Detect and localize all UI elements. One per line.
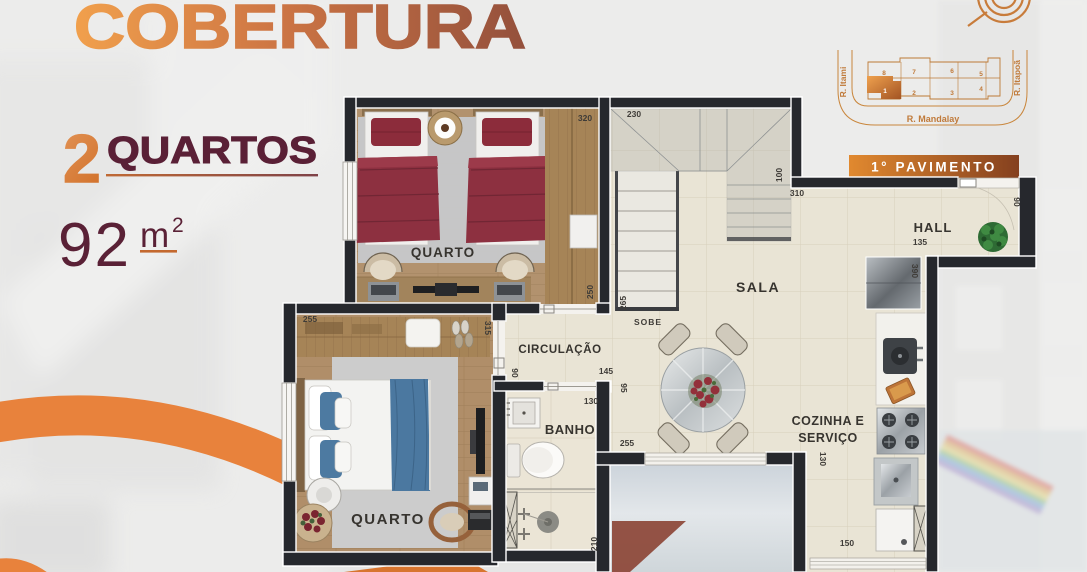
svg-text:1: 1	[883, 88, 887, 95]
svg-text:92: 92	[58, 211, 131, 280]
svg-text:90: 90	[510, 368, 520, 378]
svg-text:CIRCULAÇÃO: CIRCULAÇÃO	[518, 343, 601, 356]
svg-text:8: 8	[882, 70, 886, 77]
svg-text:2: 2	[63, 121, 101, 197]
svg-text:100: 100	[774, 168, 784, 182]
svg-text:SOBE: SOBE	[634, 317, 662, 327]
svg-text:6: 6	[950, 68, 954, 75]
svg-text:150: 150	[840, 538, 854, 548]
svg-text:SALA: SALA	[736, 279, 780, 295]
svg-text:QUARTO: QUARTO	[351, 511, 425, 528]
svg-text:COZINHA E: COZINHA E	[792, 414, 865, 428]
svg-text:3: 3	[950, 90, 954, 97]
svg-text:255: 255	[620, 438, 634, 448]
svg-text:2: 2	[912, 90, 916, 97]
svg-text:130: 130	[818, 452, 828, 466]
svg-text:250: 250	[585, 285, 595, 299]
svg-text:310: 310	[790, 188, 804, 198]
svg-text:QUARTOS: QUARTOS	[107, 130, 317, 172]
svg-text:90: 90	[1012, 197, 1022, 207]
svg-text:135: 135	[913, 237, 927, 247]
svg-text:210: 210	[589, 537, 599, 551]
svg-text:255: 255	[303, 314, 317, 324]
svg-text:HALL: HALL	[914, 220, 953, 235]
svg-text:2: 2	[172, 214, 184, 237]
svg-text:5: 5	[979, 71, 983, 78]
svg-text:SERVIÇO: SERVIÇO	[798, 431, 858, 445]
svg-text:R. Itami: R. Itami	[838, 67, 848, 98]
svg-text:4: 4	[979, 86, 983, 93]
svg-text:BANHO: BANHO	[545, 422, 595, 437]
svg-text:R. Mandalay: R. Mandalay	[907, 114, 960, 124]
svg-text:265: 265	[618, 296, 628, 310]
svg-text:320: 320	[578, 113, 592, 123]
svg-text:145: 145	[599, 366, 613, 376]
svg-text:m: m	[140, 216, 169, 255]
svg-text:1° PAVIMENTO: 1° PAVIMENTO	[871, 160, 997, 175]
svg-text:7: 7	[912, 69, 916, 76]
svg-text:230: 230	[627, 109, 641, 119]
svg-text:95: 95	[619, 383, 629, 393]
svg-text:130: 130	[584, 396, 598, 406]
svg-text:R. Itapoã: R. Itapoã	[1012, 60, 1022, 96]
svg-text:315: 315	[483, 321, 493, 335]
svg-text:QUARTO: QUARTO	[411, 245, 475, 260]
svg-text:390: 390	[910, 264, 920, 278]
svg-text:COBERTURA: COBERTURA	[74, 0, 526, 62]
